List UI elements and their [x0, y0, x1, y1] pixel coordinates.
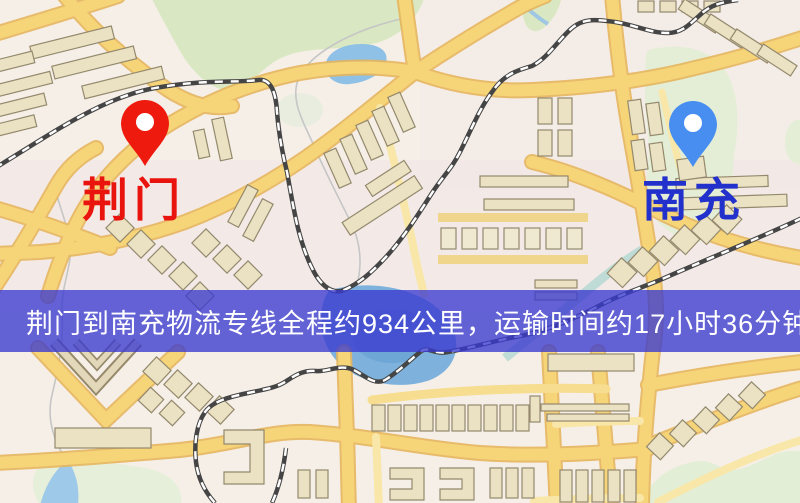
destination-city-label: 南充: [642, 177, 746, 223]
map-screenshot: 荆门 南充 荆门到南充物流专线全程约934公里，运输时间约17小时36分钟.: [0, 0, 800, 503]
origin-city-label: 荆门: [82, 177, 186, 223]
route-info-text: 荆门到南充物流专线全程约934公里，运输时间约17小时36分钟.: [0, 302, 800, 341]
route-info-banner: 荆门到南充物流专线全程约934公里，运输时间约17小时36分钟.: [0, 290, 800, 352]
map-canvas: [0, 0, 800, 503]
